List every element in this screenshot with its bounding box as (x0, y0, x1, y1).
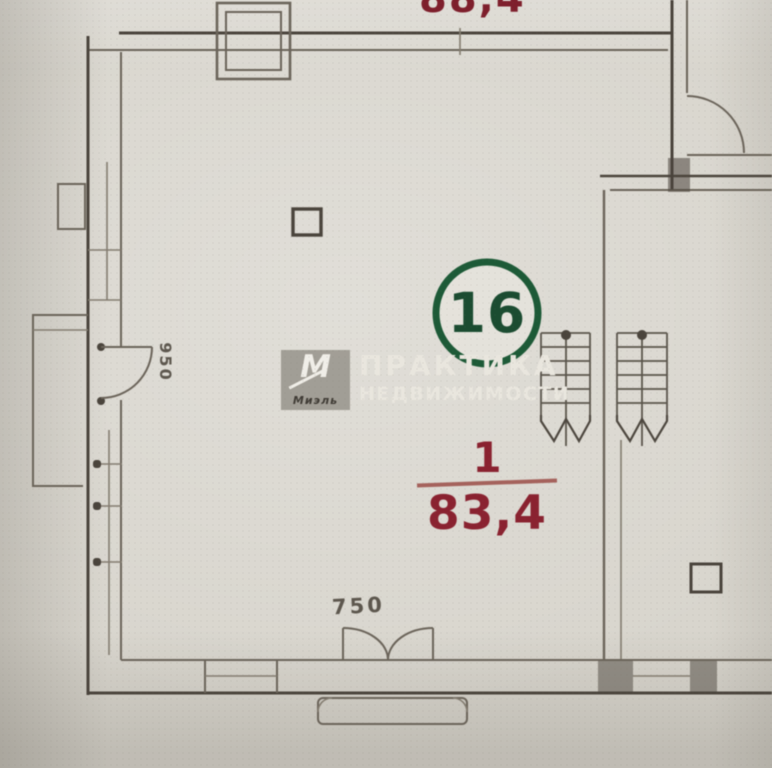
top-right-door-swing (687, 96, 744, 153)
column-box-top (217, 3, 290, 79)
left-pilaster (58, 184, 85, 229)
watermark-line2: НЕДВИЖИМОСТИ (359, 383, 570, 405)
dimension-950-label: 950 (155, 332, 175, 392)
wall-junction-pier (668, 158, 690, 192)
unit-number-label: 16 (447, 283, 527, 343)
top-right-wall (600, 0, 772, 192)
watermark-monogram-icon: М (281, 351, 350, 384)
stairs-right-flight (617, 330, 667, 446)
floorplan-drawing: 88,4 16 1 83,4 950 750 М Миэль ПРАКТИКА … (0, 0, 772, 768)
room-index-label: 1 (407, 436, 567, 480)
left-door-swing (97, 343, 152, 405)
watermark-line1: ПРАКТИКА (359, 350, 570, 381)
column-marker-mid (293, 209, 321, 235)
bottom-double-door (318, 628, 467, 724)
room-area-fraction: 1 83,4 (407, 436, 567, 540)
floorplan-photo: 88,4 16 1 83,4 950 750 М Миэль ПРАКТИКА … (0, 0, 772, 768)
entry-porch (318, 698, 467, 724)
bottom-wall (88, 660, 772, 693)
watermark-text: ПРАКТИКА НЕДВИЖИМОСТИ (359, 350, 570, 405)
watermark-logo-tile: М Миэль (281, 350, 350, 410)
column-marker-right (691, 564, 721, 592)
left-wall (33, 36, 122, 695)
watermark: М Миэль ПРАКТИКА НЕДВИЖИМОСТИ (281, 350, 570, 410)
upper-area-label: 88,4 (419, 0, 526, 22)
left-bay-window (33, 315, 88, 486)
watermark-brand-label: Миэль (281, 394, 350, 407)
dimension-750-label: 750 (331, 593, 385, 620)
room-area-label: 83,4 (407, 488, 567, 540)
top-wall (88, 3, 672, 79)
